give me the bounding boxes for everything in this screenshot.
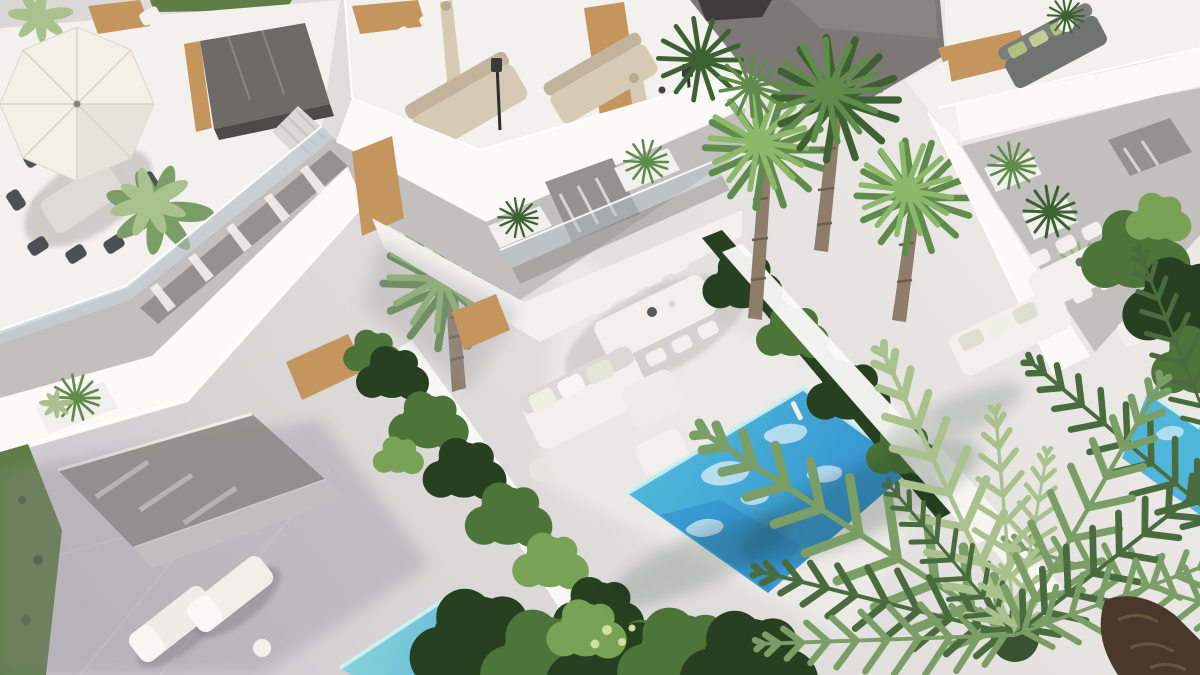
white-parasol xyxy=(0,27,154,181)
villa-aerial-render: Aerial drone view 3D render of a modern … xyxy=(0,0,1200,675)
render-canvas: Aerial drone view 3D render of a modern … xyxy=(0,0,1200,675)
floor-lantern-1 xyxy=(491,58,502,72)
